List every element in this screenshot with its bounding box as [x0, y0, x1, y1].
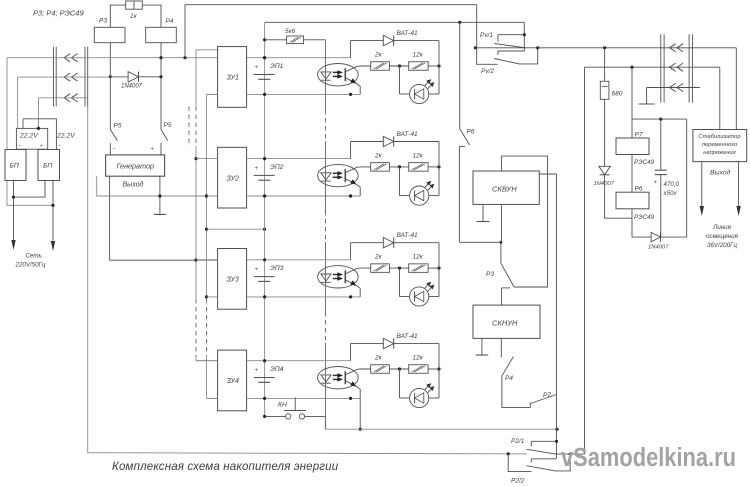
svg-text:Pv/2: Pv/2 [481, 68, 494, 75]
svg-text:Р2/2: Р2/2 [511, 478, 525, 485]
svg-text:КН: КН [278, 402, 287, 409]
svg-text:22,2V: 22,2V [56, 133, 76, 140]
svg-text:Р3; Р4; РЭС49: Р3; Р4; РЭС49 [33, 9, 84, 18]
svg-text:ВАТ-41: ВАТ-41 [397, 131, 419, 138]
svg-text:Р4: Р4 [505, 375, 513, 382]
svg-text:Генератор: Генератор [117, 161, 154, 170]
svg-text:БП: БП [10, 163, 19, 170]
svg-text:ЭП4: ЭП4 [270, 366, 284, 373]
svg-text:470,0: 470,0 [664, 181, 680, 188]
svg-text:+: + [255, 267, 259, 273]
svg-text:12к: 12к [413, 52, 424, 59]
svg-text:Р7: Р7 [635, 131, 643, 138]
svg-text:12к: 12к [413, 355, 424, 362]
svg-text:ЗУ4: ЗУ4 [227, 378, 239, 385]
svg-text:Р5: Р5 [164, 122, 172, 129]
svg-text:12к: 12к [413, 254, 424, 261]
svg-text:vSamodelkina.ru: vSamodelkina.ru [561, 444, 736, 472]
svg-text:2к: 2к [374, 254, 383, 261]
svg-text:х50v: х50v [663, 190, 678, 197]
svg-text:1к: 1к [130, 13, 138, 20]
svg-text:переменного: переменного [702, 142, 738, 148]
svg-text:Pv/1: Pv/1 [480, 32, 493, 39]
svg-text:Выход: Выход [123, 181, 144, 189]
svg-text:Линия: Линия [712, 224, 732, 231]
svg-text:1N4007: 1N4007 [594, 181, 615, 187]
svg-text:Сеть: Сеть [26, 253, 42, 260]
svg-text:ЗУ2: ЗУ2 [227, 175, 239, 182]
svg-text:Стабилизатор: Стабилизатор [698, 134, 741, 140]
svg-text:освещения: освещения [706, 233, 739, 240]
svg-text:напряжения: напряжения [703, 150, 736, 156]
svg-text:Выход: Выход [710, 169, 731, 177]
svg-text:2к: 2к [374, 152, 383, 159]
svg-text:22,2V: 22,2V [19, 133, 39, 140]
svg-text:СКВУН: СКВУН [492, 185, 517, 194]
svg-text:2к: 2к [374, 355, 383, 362]
svg-text:СКНУН: СКНУН [492, 319, 518, 328]
svg-text:Р6: Р6 [635, 186, 643, 193]
svg-text:36V/200Гц: 36V/200Гц [707, 242, 737, 249]
svg-text:РЭС49: РЭС49 [634, 214, 655, 221]
svg-text:Р2/1: Р2/1 [511, 438, 525, 445]
svg-text:220V/50Гц: 220V/50Гц [15, 262, 46, 269]
svg-text:Р7: Р7 [543, 392, 551, 399]
svg-text:680: 680 [612, 91, 623, 98]
svg-text:ЭП1: ЭП1 [270, 63, 284, 70]
svg-text:12к: 12к [413, 152, 424, 159]
svg-text:5к6: 5к6 [285, 28, 296, 35]
svg-text:ВАТ-41: ВАТ-41 [397, 333, 419, 340]
svg-text:ВАТ-41: ВАТ-41 [397, 232, 419, 239]
svg-text:ЭП2: ЭП2 [270, 164, 284, 171]
svg-text:Р5: Р5 [114, 123, 122, 130]
svg-text:1N4007: 1N4007 [648, 245, 669, 251]
svg-text:1N4007: 1N4007 [121, 84, 143, 90]
svg-text:+: + [255, 166, 259, 172]
svg-text:ВАТ-41: ВАТ-41 [397, 30, 419, 37]
svg-text:Р6: Р6 [467, 129, 475, 136]
svg-text:Р3: Р3 [99, 18, 107, 25]
svg-text:2к: 2к [374, 52, 383, 59]
svg-text:Комплексная схема накопителя: Комплексная схема накопителя энергии [112, 460, 339, 473]
svg-text:БП: БП [43, 163, 52, 170]
svg-text:Р3: Р3 [486, 271, 494, 278]
svg-text:ЗУ1: ЗУ1 [227, 75, 239, 82]
svg-text:+: + [654, 180, 658, 186]
svg-text:ЗУ3: ЗУ3 [227, 277, 239, 284]
svg-text:ЭП3: ЭП3 [270, 265, 284, 272]
svg-text:РЭС49: РЭС49 [634, 159, 655, 166]
svg-text:+: + [255, 368, 259, 374]
svg-text:Р4: Р4 [166, 18, 174, 25]
svg-text:+: + [255, 65, 259, 71]
